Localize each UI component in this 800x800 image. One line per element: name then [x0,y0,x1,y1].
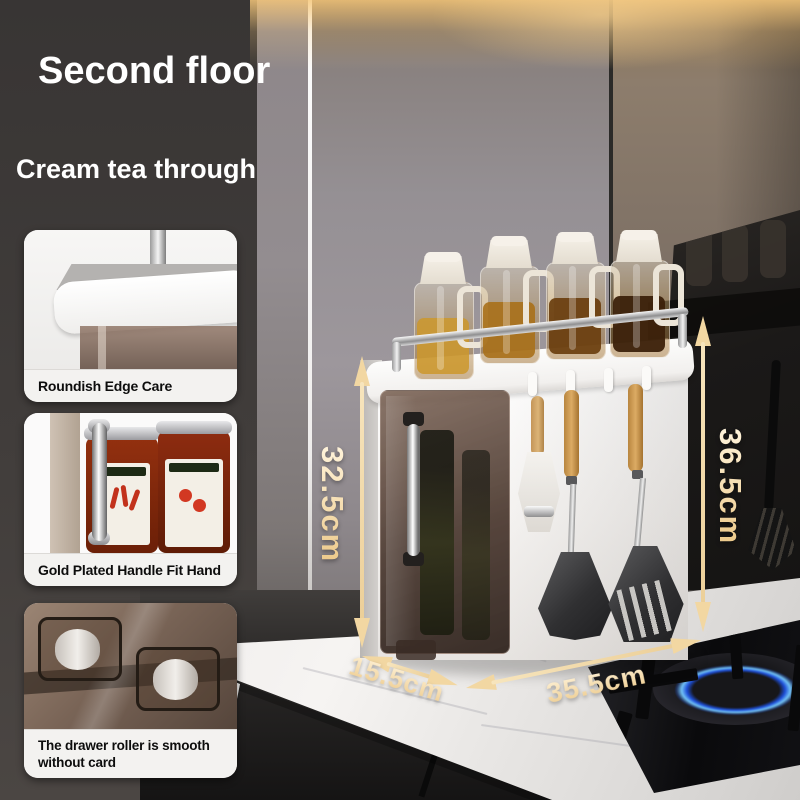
reflection-bottle-silhouette [760,220,786,278]
chili-art [128,489,140,511]
dimension-arrow-front-height [354,356,370,648]
drawer-bottle-silhouette [462,450,490,640]
roller-wheel [55,629,100,670]
feature-photo-handle [24,413,237,553]
arrowhead-down-icon [354,618,370,648]
bottle-cap-top [425,252,461,262]
hook-1[interactable] [528,372,537,396]
tomato-art [179,489,192,502]
chili-art [109,487,119,510]
peeler-handle [531,396,544,456]
dimension-label-front-height: 32.5cm [314,446,350,563]
roller-wheel [153,659,198,700]
dimension-arrow-back-height [695,316,711,632]
peeler-blade [524,506,554,517]
wok-spatula-handle [564,390,579,478]
hook-4[interactable] [642,366,651,390]
bottle-cap-top [491,236,527,246]
oil-bottle-2 [479,236,541,364]
feature-card-roller: The drawer roller is smooth without card [24,603,237,778]
feature-photo-edge [24,230,237,369]
feature-card-handle: Gold Plated Handle Fit Hand [24,413,237,586]
tomato-art [193,499,206,512]
drawer-roller [38,617,122,681]
drawer-band-highlight [98,326,106,369]
arrowhead-down-icon [695,602,711,632]
oil-bottle-3 [545,232,607,360]
product-scene: 32.5cm 36.5cm 15.5cm 35.5cm Second floor… [0,0,800,800]
arrow-line [360,382,364,622]
rail-post-right [678,314,687,348]
drawer-bottle-silhouette [420,430,454,635]
bottle-streak [503,270,510,354]
rail-post-left [392,342,401,372]
wall-mid-strip [257,0,308,660]
rack-frame-strip [50,413,80,553]
bottle-streak [569,266,576,350]
jar-label-header [169,463,219,472]
oil-bottle-4 [609,230,671,358]
reflection-bottle-silhouette [722,224,748,282]
feature-photo-roller [24,603,237,729]
feature-card-edge: Roundish Edge Care [24,230,237,402]
bottle-streak [633,264,640,348]
bottle-streak [437,286,444,370]
jar-label [165,459,223,547]
gold-plated-handle [92,423,107,541]
arrow-line [701,342,705,606]
feature-caption: Roundish Edge Care [24,369,237,402]
dimension-label-back-height: 36.5cm [712,428,748,545]
slotted-turner-handle [628,384,643,472]
drawer-handle[interactable] [407,424,420,556]
drawer-roller [136,647,220,711]
page-subtitle: Cream tea through [16,154,256,185]
drawer-roller-foot [396,640,436,660]
page-title: Second floor [38,50,270,93]
feature-caption: Gold Plated Handle Fit Hand [24,553,237,586]
oil-bottle-1 [413,252,475,380]
bottle-cap-top [621,230,657,240]
jar-lid [156,421,232,434]
bottle-cap-top [557,232,593,242]
feature-caption: The drawer roller is smooth without card [24,729,237,778]
chili-art [120,485,128,507]
hook-3[interactable] [604,368,613,392]
spice-jar-tomato [158,431,230,553]
